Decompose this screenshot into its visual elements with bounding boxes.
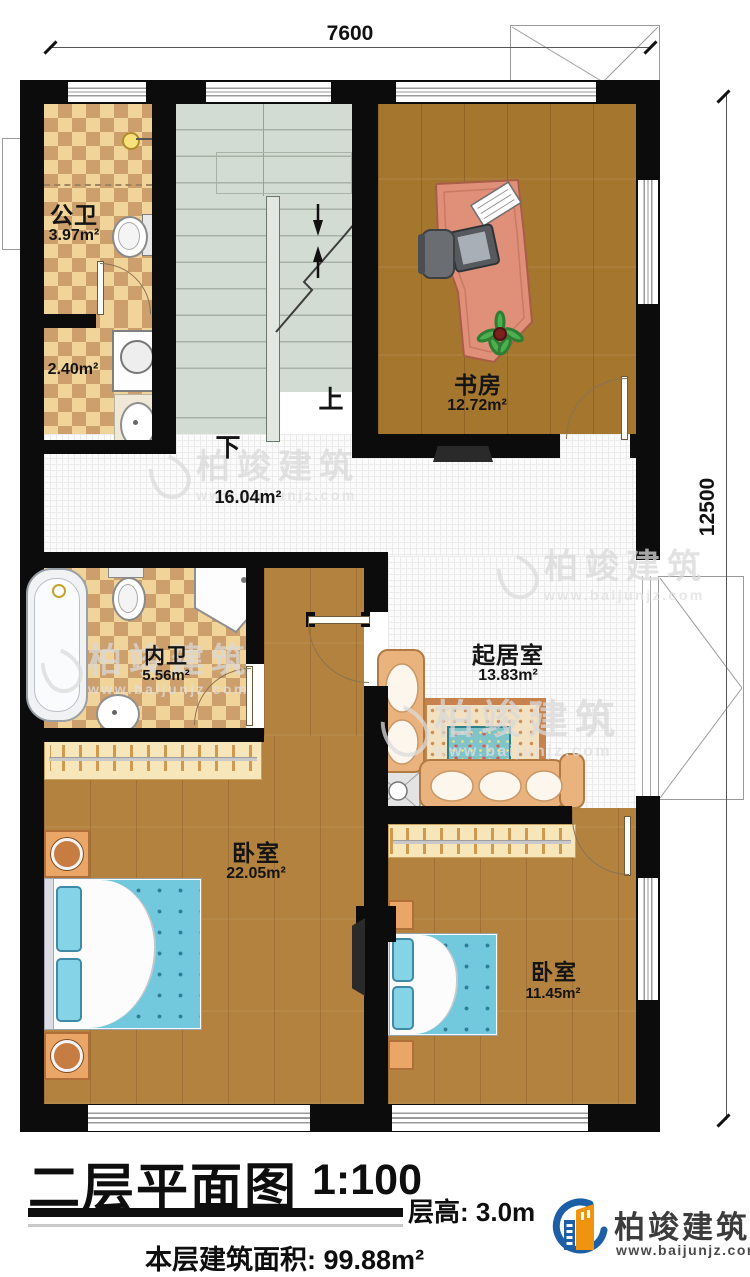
- right-balcony: [658, 576, 744, 800]
- room-area-bedroom-master: 22.05m²: [226, 866, 286, 882]
- floor-plan-page: 7600 12500: [0, 0, 750, 1277]
- pillow: [392, 986, 414, 1030]
- nightstand: [44, 1032, 90, 1080]
- room-area-gongwei: 3.97m²: [49, 228, 100, 244]
- nightstand-lamp: [51, 1040, 83, 1072]
- nightstand-small: [388, 1040, 414, 1070]
- wall-bedroom2-north: [388, 806, 572, 824]
- floor-area-label: 本层建筑面积: 99.88m²: [145, 1238, 424, 1277]
- wall-study-west: [352, 104, 378, 458]
- nightstand-lamp: [51, 838, 83, 870]
- window-right-study: [638, 180, 658, 304]
- room-area-bedroom-second: 11.45m²: [525, 986, 580, 1001]
- wall-exterior-right-upper: [636, 80, 660, 560]
- floor-height-label: 层高: 3.0m: [408, 1192, 535, 1229]
- top-dimension-line: [52, 47, 652, 48]
- room-area-neiwei: 5.56m²: [142, 668, 190, 683]
- room-label-qijushi: 起居室: [472, 644, 544, 667]
- dimension-tick: [716, 89, 730, 103]
- room-area-qijushi: 13.83m²: [478, 668, 538, 684]
- brand-website: www.baijunjz.com: [616, 1242, 750, 1258]
- wall-neiwei-south: [20, 728, 264, 742]
- top-balcony: [510, 25, 660, 84]
- room-label-bedroom-second: 卧室: [531, 962, 577, 984]
- title-underline-thin: [28, 1224, 403, 1227]
- room-area-corridor: 16.04m²: [214, 488, 281, 506]
- toilet-bowl: [118, 222, 140, 250]
- pillow: [56, 886, 82, 952]
- room-label-gongwei: 公卫: [50, 204, 98, 227]
- shower-partition-dashed: [44, 184, 152, 186]
- sink-drain: [112, 710, 117, 715]
- window-top-gongwei: [68, 82, 146, 102]
- bathtub-faucet: [52, 584, 66, 598]
- room-label-shufang: 书房: [454, 374, 502, 397]
- washing-machine-drum: [120, 340, 154, 374]
- wall-laundry-south: [44, 440, 176, 454]
- wall-bedrooms-divider-upper: [364, 556, 388, 612]
- room-area-shufang: 12.72m²: [447, 398, 507, 414]
- window-right-bedroom2: [638, 878, 658, 1000]
- pillow: [392, 938, 414, 982]
- stair-break-line: [256, 196, 356, 346]
- wall-bedrooms-divider: [364, 686, 388, 1104]
- study-desk: [418, 172, 553, 372]
- nightstand: [44, 830, 90, 878]
- stair-landing-outline: [216, 152, 352, 194]
- plan-scale: 1:100: [312, 1156, 422, 1205]
- window-top-stairs: [206, 82, 331, 102]
- wall-study-south-stub: [630, 434, 636, 458]
- wardrobe-second: [388, 824, 576, 858]
- shower-arm: [136, 138, 152, 140]
- title-underline-thick: [28, 1208, 403, 1217]
- room-label-neiwei: 内卫: [144, 646, 188, 667]
- wall-gongwei-divider: [44, 314, 96, 328]
- pillow: [56, 958, 82, 1022]
- room-label-bedroom-master: 卧室: [232, 842, 280, 865]
- toilet-bowl: [118, 584, 138, 613]
- wall-corridor-south: [20, 552, 388, 568]
- wardrobe-master: [44, 736, 262, 780]
- brand-logo-icon: [550, 1196, 610, 1262]
- right-dimension-label: 12500: [696, 477, 720, 537]
- wardrobe-rail: [49, 757, 256, 761]
- top-dimension-label: 7600: [327, 22, 374, 46]
- shower-head-icon: [122, 132, 140, 150]
- wall-neiwei-east: [246, 552, 264, 664]
- right-dimension-line: [726, 95, 727, 1120]
- bathtub-inner: [34, 578, 80, 712]
- window-bottom-bedroom-master: [88, 1105, 310, 1131]
- brand-name: 柏竣建筑: [614, 1202, 750, 1247]
- bed-headboard: [44, 878, 54, 1030]
- sink-drain: [133, 420, 138, 425]
- balcony-door-line: [642, 576, 643, 798]
- tv-bedroom-master: [352, 918, 365, 996]
- window-bottom-bedroom-second: [392, 1105, 588, 1131]
- wall-stair-west: [152, 104, 176, 454]
- dimension-tick: [716, 1113, 730, 1127]
- stair-up-label: 上: [318, 388, 343, 413]
- window-top-study: [396, 82, 596, 102]
- stair-down-label: 下: [215, 436, 240, 461]
- balcony-door-line: [650, 576, 651, 798]
- room-area-laundry: 2.40m²: [48, 362, 99, 378]
- wardrobe-rail: [393, 840, 572, 844]
- tv-study: [433, 446, 493, 462]
